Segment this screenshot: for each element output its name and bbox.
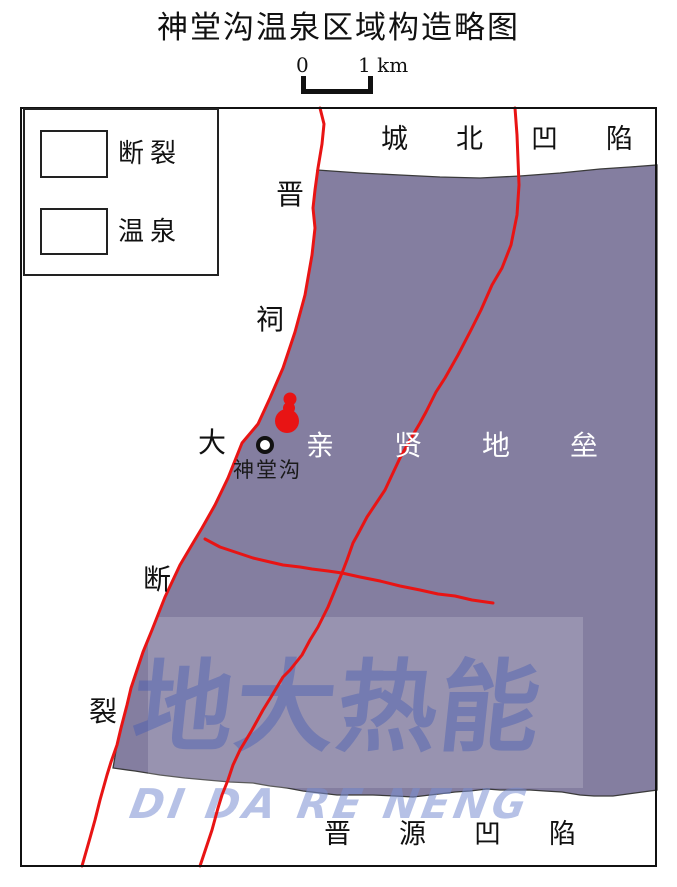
region-label-chengbei: 城北凹陷 — [381, 126, 677, 153]
site-label-shentanggou: 神堂沟 — [233, 460, 302, 481]
legend-fault-label: 断裂 — [118, 141, 182, 167]
legend-fault-swatch — [40, 130, 108, 178]
fault-name-char-4: 断 — [143, 566, 171, 594]
region-label-jinyuan: 晋源凹陷 — [324, 821, 624, 848]
region-label-qinxian: 亲贤地垒 — [306, 432, 658, 460]
map-figure: 神堂沟温泉区域构造略图 0 1 km 地大热能 DI DA RE NENG 断裂… — [0, 0, 677, 887]
legend-spring-label: 温泉 — [118, 219, 182, 245]
legend-spring-swatch — [40, 208, 108, 255]
fault-name-char-5: 裂 — [89, 698, 117, 726]
fault-name-char-2: 祠 — [256, 306, 284, 334]
fault-name-char-3: 大 — [198, 429, 226, 457]
fault-name-char-1: 晋 — [276, 181, 304, 209]
